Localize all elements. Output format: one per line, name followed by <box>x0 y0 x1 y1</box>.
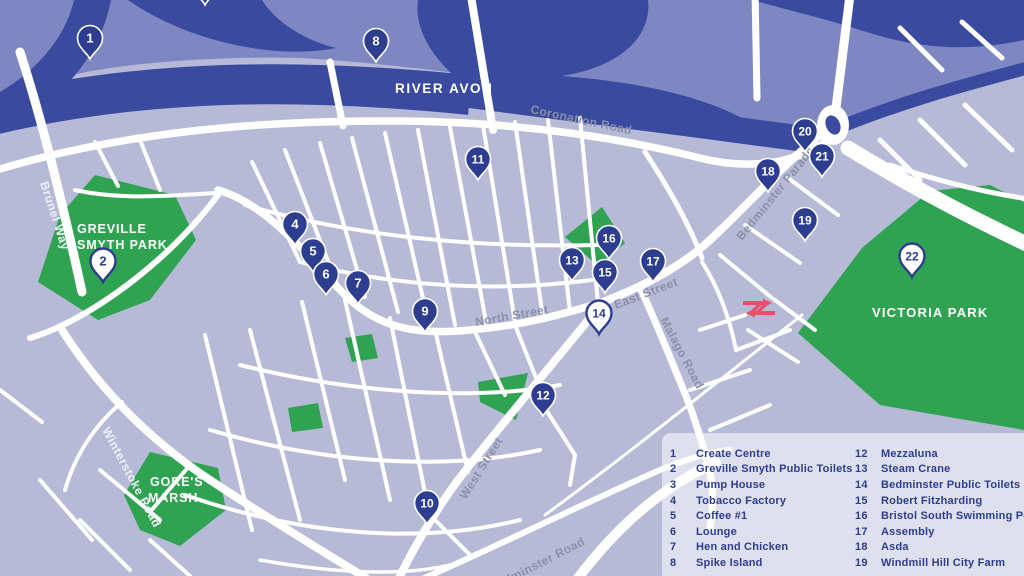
legend-item: 18Asda <box>855 540 1024 556</box>
pin-number: 12 <box>536 389 550 403</box>
pin-number: 17 <box>646 255 660 269</box>
legend-item-label: Robert Fitzharding <box>881 495 1024 507</box>
legend-item: 5Coffee #1 <box>670 508 855 524</box>
legend-item-number: 8 <box>670 557 696 569</box>
legend-item-label: Pump House <box>696 479 855 491</box>
legend-item-number: 12 <box>855 448 881 460</box>
legend-item-number: 7 <box>670 541 696 553</box>
pin-number: 20 <box>798 125 812 139</box>
legend-item-number: 3 <box>670 479 696 491</box>
legend-item: 17Assembly <box>855 524 1024 540</box>
legend-item: 1Create Centre <box>670 446 855 462</box>
legend-item-number: 14 <box>855 479 881 491</box>
legend-item-label: Steam Crane <box>881 463 1024 475</box>
greville-park-label-1: GREVILLE <box>77 222 147 236</box>
greville-park-label-2: SMYTH PARK <box>77 238 168 252</box>
pin-number: 18 <box>761 165 775 179</box>
pin-number: 21 <box>815 150 829 164</box>
legend-item-number: 2 <box>670 463 696 475</box>
legend-item-label: Tobacco Factory <box>696 495 855 507</box>
legend-item-label: Hen and Chicken <box>696 541 855 553</box>
legend-item-label: Spike Island <box>696 557 855 569</box>
legend-item-number: 6 <box>670 526 696 538</box>
map-screenshot: RIVER AVON Coronation Road North Street … <box>0 0 1024 576</box>
pin-number: 11 <box>472 153 485 167</box>
pin-number: 13 <box>565 254 579 268</box>
pin-number: 1 <box>86 31 93 46</box>
legend-item-label: Bristol South Swimming Pool <box>881 510 1024 522</box>
gores-marsh-label-2: MARSH <box>148 491 198 505</box>
pin-number: 15 <box>598 266 612 280</box>
gores-marsh-label-1: GORE'S <box>150 475 204 489</box>
pin-number: 6 <box>322 267 329 282</box>
pin-number: 5 <box>309 244 316 259</box>
legend-column-1: 1Create Centre2Greville Smyth Public Toi… <box>670 446 855 576</box>
legend-item: 16Bristol South Swimming Pool <box>855 508 1024 524</box>
legend-item-number: 5 <box>670 510 696 522</box>
pin-number: 22 <box>905 250 919 264</box>
legend-item-number: 15 <box>855 495 881 507</box>
legend-item-label: Greville Smyth Public Toilets <box>696 463 855 475</box>
legend-item-number: 17 <box>855 526 881 538</box>
green-patch-2 <box>288 403 323 432</box>
legend-item: 4Tobacco Factory <box>670 493 855 509</box>
pin-number: 8 <box>372 34 379 49</box>
pin-number: 9 <box>421 304 428 319</box>
pin-number: 14 <box>592 307 606 321</box>
pin-number: 4 <box>291 217 299 232</box>
river-avon-label: RIVER AVON <box>395 81 494 96</box>
legend-item: 8Spike Island <box>670 555 855 571</box>
legend-item-number: 4 <box>670 495 696 507</box>
legend-item: 14Bedminster Public Toilets <box>855 477 1024 493</box>
legend-item: 7Hen and Chicken <box>670 540 855 556</box>
legend-item-label: Coffee #1 <box>696 510 855 522</box>
pin-number: 19 <box>798 214 812 228</box>
victoria-park-label: VICTORIA PARK <box>872 305 988 320</box>
legend-item-label: Lounge <box>696 526 855 538</box>
legend-item: 15Robert Fitzharding <box>855 493 1024 509</box>
legend-item: 13Steam Crane <box>855 462 1024 478</box>
legend-item: 2Greville Smyth Public Toilets <box>670 462 855 478</box>
legend-item-label: Windmill Hill City Farm <box>881 557 1024 569</box>
legend-panel: 1Create Centre2Greville Smyth Public Toi… <box>662 433 1024 576</box>
pin-number: 7 <box>354 276 361 291</box>
legend-item-number: 13 <box>855 463 881 475</box>
legend-item: 6Lounge <box>670 524 855 540</box>
pin-number: 2 <box>99 254 106 269</box>
legend-item: 3Pump House <box>670 477 855 493</box>
legend-item: 12Mezzaluna <box>855 446 1024 462</box>
legend-item-label: Bedminster Public Toilets <box>881 479 1024 491</box>
legend-item-number: 1 <box>670 448 696 460</box>
legend-item-label: Mezzaluna <box>881 448 1024 460</box>
legend-item-number: 18 <box>855 541 881 553</box>
legend-item-label: Asda <box>881 541 1024 553</box>
legend-item-number: 16 <box>855 510 881 522</box>
legend-item-label: Create Centre <box>696 448 855 460</box>
legend-column-2: 12Mezzaluna13Steam Crane14Bedminster Pub… <box>855 446 1024 576</box>
pin-number: 10 <box>420 497 434 511</box>
legend-item-number: 19 <box>855 557 881 569</box>
legend-item: 19Windmill Hill City Farm <box>855 555 1024 571</box>
pin-number: 16 <box>602 232 616 246</box>
legend-item-label: Assembly <box>881 526 1024 538</box>
